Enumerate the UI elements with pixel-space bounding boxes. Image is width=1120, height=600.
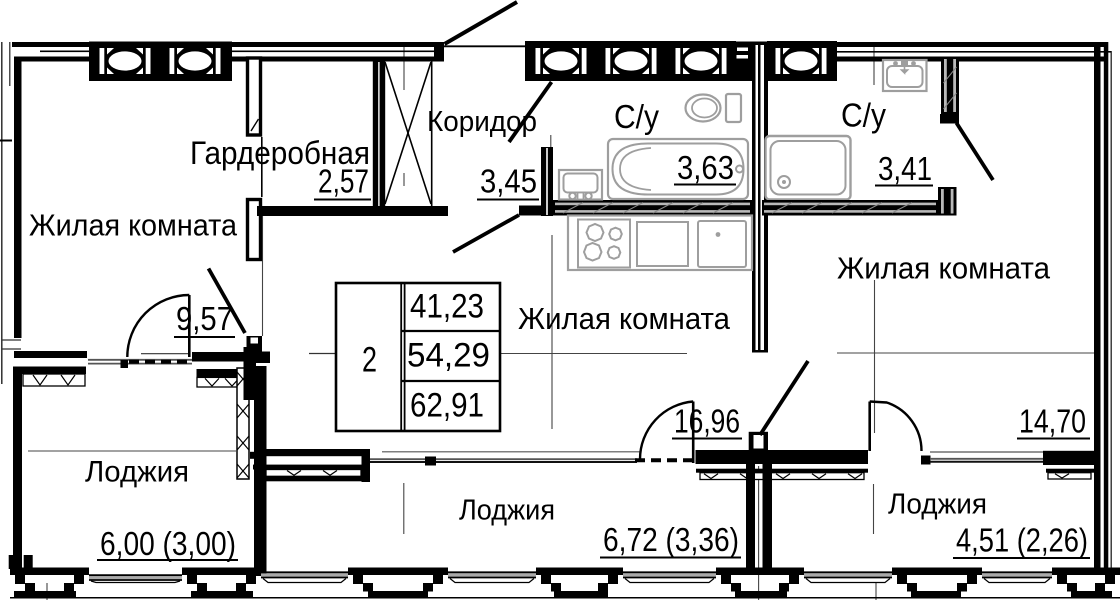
svg-text:54,29: 54,29	[407, 337, 490, 375]
svg-text:2: 2	[362, 341, 377, 380]
svg-text:41,23: 41,23	[410, 288, 484, 326]
svg-text:62,91: 62,91	[410, 387, 484, 425]
svg-text:Жилая комната: Жилая комната	[518, 301, 731, 336]
svg-text:Жилая комната: Жилая комната	[837, 251, 1051, 286]
svg-text:6,00 (3,00): 6,00 (3,00)	[100, 525, 236, 562]
svg-text:Лоджия: Лоджия	[459, 495, 555, 527]
svg-text:9,57: 9,57	[176, 300, 233, 337]
svg-text:Лоджия: Лоджия	[888, 489, 987, 521]
svg-text:3,45: 3,45	[480, 163, 537, 200]
svg-text:6,72 (3,36): 6,72 (3,36)	[603, 521, 739, 558]
svg-text:Жилая комната: Жилая комната	[29, 208, 238, 243]
svg-text:3,41: 3,41	[878, 150, 932, 187]
svg-text:С/у: С/у	[841, 97, 886, 134]
svg-text:2,57: 2,57	[318, 163, 369, 200]
svg-text:16,96: 16,96	[674, 403, 740, 440]
svg-text:14,70: 14,70	[1019, 403, 1086, 440]
svg-text:4,51 (2,26): 4,51 (2,26)	[956, 522, 1088, 559]
svg-text:Лоджия: Лоджия	[85, 456, 189, 489]
svg-text:Коридор: Коридор	[427, 106, 537, 138]
svg-text:3,63: 3,63	[677, 149, 734, 186]
svg-text:С/у: С/у	[614, 98, 659, 135]
